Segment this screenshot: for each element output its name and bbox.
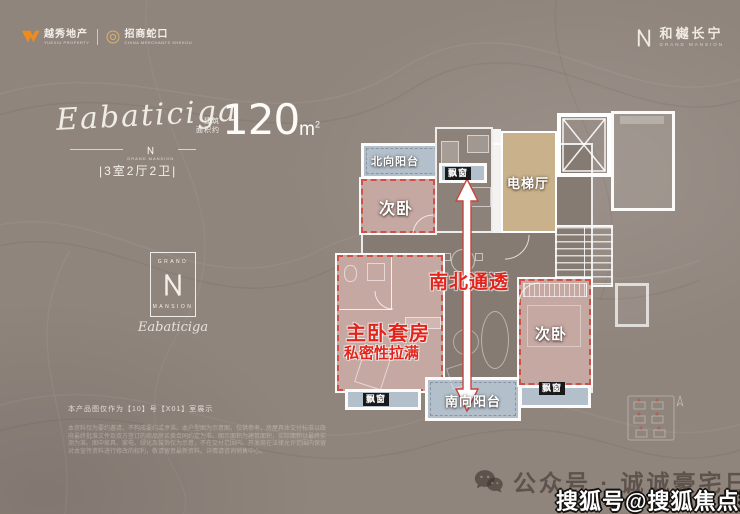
south-balcony-label: 南向阳台 (445, 391, 501, 410)
yuexiu-brand: 越秀地产 YUEXIU PROPERTY (22, 30, 89, 45)
disclaimer-body: 本资料仅为要约邀请，不构成要约或承诺。本户型图为示意图，仅供参考，房屋具体交付标… (68, 426, 326, 456)
elevator-shaft (557, 113, 611, 177)
project-name: 和樾长宁 (659, 27, 724, 41)
yuexiu-logo-icon (22, 30, 40, 44)
project-sub: GRAND MANSION (659, 41, 724, 48)
shekou-name: 招商蛇口 (124, 30, 192, 40)
shekou-sub: CHINA MERCHANTS SHEKOU (124, 40, 192, 45)
neighbor-unit-room (611, 111, 675, 211)
neighbor-entry-nook (615, 283, 649, 327)
disclaimer-title: 本产品图仅作为【10】号【X01】室展示 (68, 404, 213, 414)
area-value: 120 (222, 98, 299, 142)
yuexiu-name: 越秀地产 (44, 30, 89, 40)
badge-word-bottom: MANSION (153, 304, 194, 310)
mini-monogram-icon (147, 146, 154, 155)
divider-line-left (70, 149, 123, 150)
bay-window-north-label: 飘窗 (445, 167, 471, 180)
area-prefix: 建筑 面积约 (196, 118, 220, 142)
layout-spec: |3室2厅2卫| (99, 162, 177, 179)
kitchen-sink (467, 135, 489, 153)
badge-monogram-icon (163, 272, 183, 298)
stairwell (555, 225, 613, 287)
neighbor-closet (620, 116, 664, 124)
shower (367, 263, 385, 281)
divider-emblem: GRAND MANSION (127, 146, 174, 161)
shekou-emblem-icon (106, 30, 120, 44)
dining-chair (443, 253, 451, 261)
annotation-privacy: 私密性拉满 (344, 342, 419, 363)
toilet (344, 265, 357, 282)
elevator-hall-label: 电梯厅 (507, 173, 549, 192)
shekou-brand: 招商蛇口 CHINA MERCHANTS SHEKOU (106, 30, 192, 45)
annotation-ns-through: 南北通透 (429, 267, 509, 294)
bedroom-south-closet (523, 283, 587, 297)
bedroom-north-label: 次卧 (379, 195, 413, 219)
badge-script: Eabaticiga (103, 320, 243, 335)
bedroom-south-label: 次卧 (535, 323, 567, 344)
developer-brand-bar: 越秀地产 YUEXIU PROPERTY 招商蛇口 CHINA MERCHANT… (22, 29, 192, 45)
project-logo: 和樾长宁 GRAND MANSION (636, 27, 724, 48)
divider-line-right (178, 149, 196, 150)
divider-emblem-text: GRAND MANSION (127, 156, 174, 161)
sohu-watermark: 搜狐号@搜狐焦点荆州站 (556, 484, 740, 514)
decorative-script-headline: Eabaticiga (55, 95, 207, 138)
floorplan-poster: 越秀地产 YUEXIU PROPERTY 招商蛇口 CHINA MERCHANT… (0, 0, 740, 514)
bay-window-southwest-label: 飘窗 (363, 393, 389, 406)
grand-mansion-badge: GRAND MANSION (150, 252, 196, 317)
coffee-table-oval (481, 311, 509, 369)
floorplan: 北向阳台 次卧 飘窗 电梯厅 (333, 103, 693, 433)
brand-divider (97, 29, 98, 45)
wechat-icon (474, 468, 504, 494)
north-south-arrow (454, 177, 480, 413)
corridor-wall (493, 129, 501, 233)
grand-mansion-monogram-icon (636, 28, 652, 48)
yuexiu-sub: YUEXIU PROPERTY (44, 40, 89, 45)
area-figure: 建筑 面积约 120 m2 (196, 98, 320, 142)
bay-window-southeast-label: 飘窗 (539, 382, 565, 395)
master-bathroom (339, 257, 392, 310)
site-plan-sketch (622, 388, 690, 446)
badge-word-top: GRAND (158, 259, 189, 265)
headline-divider: GRAND MANSION (70, 142, 196, 157)
north-balcony-label: 北向阳台 (371, 153, 419, 169)
stair-divider (584, 227, 585, 285)
area-unit: m2 (299, 119, 320, 142)
